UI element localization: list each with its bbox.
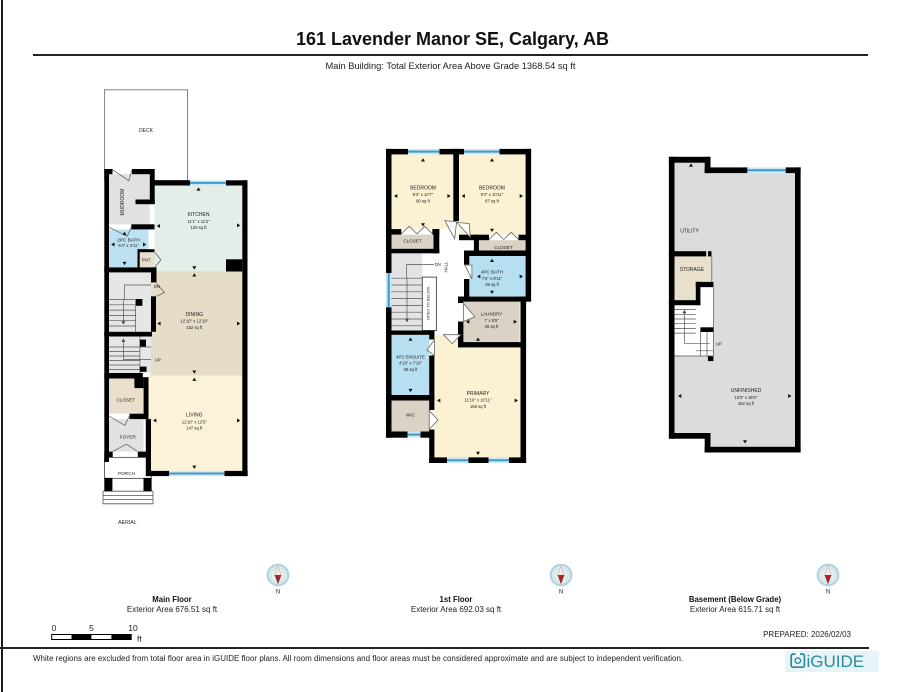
svg-text:7'6" x 8'11": 7'6" x 8'11" <box>482 276 503 281</box>
svg-text:UP: UP <box>155 357 161 362</box>
svg-text:HALL: HALL <box>444 261 449 273</box>
svg-text:KITCHEN: KITCHEN <box>188 212 210 218</box>
svg-text:BEDROOM: BEDROOM <box>410 185 436 191</box>
svg-text:LAUNDRY: LAUNDRY <box>481 312 503 317</box>
svg-text:WIC: WIC <box>406 413 416 418</box>
svg-text:DINING: DINING <box>186 312 204 318</box>
svg-text:11'1" x 11'2": 11'1" x 11'2" <box>187 219 210 224</box>
svg-text:452 sq ft: 452 sq ft <box>738 401 755 406</box>
svg-text:N: N <box>276 590 280 596</box>
svg-text:12'10" x 12'10": 12'10" x 12'10" <box>180 319 208 324</box>
svg-text:11'10" x 12'5": 11'10" x 12'5" <box>182 419 207 424</box>
svg-text:15'9" x 36'0": 15'9" x 36'0" <box>735 395 758 400</box>
svg-text:2PC BATH: 2PC BATH <box>117 237 140 242</box>
svg-text:UNFINISHED: UNFINISHED <box>731 388 762 394</box>
svg-text:MUDROOM: MUDROOM <box>120 189 126 216</box>
svg-text:120 sq ft: 120 sq ft <box>190 225 207 230</box>
svg-text:UP: UP <box>716 341 722 346</box>
svg-text:4PC ENSUITE: 4PC ENSUITE <box>396 354 425 359</box>
svg-text:4'10" x 7'10": 4'10" x 7'10" <box>399 361 422 366</box>
svg-text:DN: DN <box>154 284 160 289</box>
svg-text:LIVING: LIVING <box>186 413 203 419</box>
svg-text:152 sq ft: 152 sq ft <box>186 325 203 330</box>
svg-text:N: N <box>559 590 563 596</box>
svg-text:8'3" x 10'7": 8'3" x 10'7" <box>413 192 434 197</box>
svg-text:AERIAL: AERIAL <box>118 520 137 526</box>
svg-text:80 sq ft: 80 sq ft <box>416 199 431 204</box>
svg-text:38 sq ft: 38 sq ft <box>404 367 419 372</box>
svg-text:4PC BATH: 4PC BATH <box>481 270 503 275</box>
svg-text:PRIMARY: PRIMARY <box>467 391 490 397</box>
svg-text:ft: ft <box>137 634 142 644</box>
svg-text:CLOSET: CLOSET <box>116 398 135 403</box>
svg-text:CLOSET: CLOSET <box>403 239 422 244</box>
svg-text:147 sq ft: 147 sq ft <box>186 426 203 431</box>
svg-text:5'4" x 4'11": 5'4" x 4'11" <box>118 243 139 248</box>
svg-text:OPEN TO BELOW: OPEN TO BELOW <box>425 286 430 320</box>
svg-text:FOYER: FOYER <box>120 435 137 440</box>
svg-text:10: 10 <box>128 623 138 633</box>
svg-text:0: 0 <box>52 623 57 633</box>
svg-text:39 sq ft: 39 sq ft <box>485 282 500 287</box>
svg-text:UTILITY: UTILITY <box>680 229 699 235</box>
svg-text:9'4" x 10'11": 9'4" x 10'11" <box>481 192 504 197</box>
svg-text:STORAGE: STORAGE <box>680 267 705 273</box>
svg-text:87 sq ft: 87 sq ft <box>485 199 500 204</box>
svg-text:DN: DN <box>435 262 441 267</box>
svg-text:168 sq ft: 168 sq ft <box>470 404 487 409</box>
svg-text:7' x 5'5": 7' x 5'5" <box>484 318 499 323</box>
svg-text:38 sq ft: 38 sq ft <box>485 324 500 329</box>
svg-text:11'10" x 10'11": 11'10" x 10'11" <box>464 398 492 403</box>
svg-text:DECK: DECK <box>139 128 154 134</box>
svg-text:CLOSET: CLOSET <box>494 245 513 250</box>
svg-text:PORCH: PORCH <box>118 471 135 476</box>
svg-text:5: 5 <box>89 623 94 633</box>
svg-text:BEDROOM: BEDROOM <box>479 185 505 191</box>
svg-text:PNT: PNT <box>142 258 151 263</box>
svg-text:iGUIDE: iGUIDE <box>807 652 865 671</box>
